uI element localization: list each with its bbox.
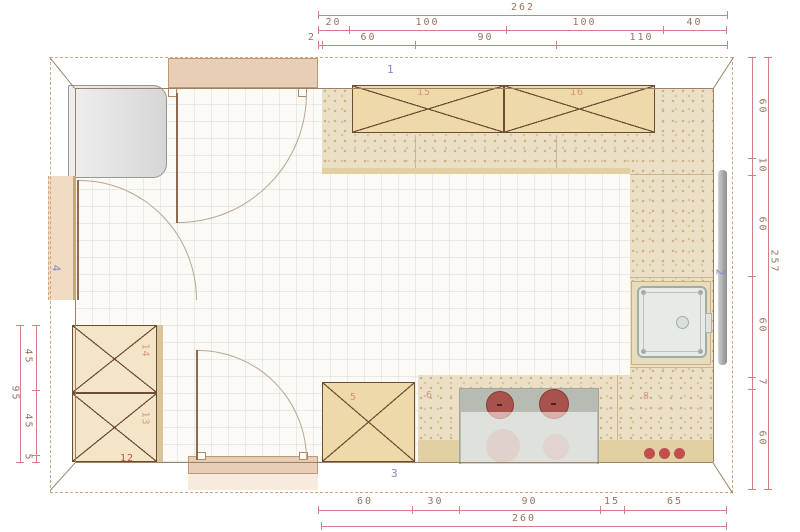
dim-tick	[32, 390, 40, 391]
dim-right-total: 257	[769, 247, 780, 277]
dim-left-total: 95	[10, 379, 21, 409]
wall-label-1: 1	[387, 64, 394, 76]
dimension-line	[318, 510, 727, 511]
dim-right-4: 7	[757, 368, 768, 398]
dim-bottom-4: 65	[624, 496, 726, 507]
dim-tick	[748, 158, 756, 159]
dim-tick	[556, 41, 557, 49]
dim-tick	[318, 26, 319, 34]
dim-tick	[321, 522, 322, 530]
dim-bottom-2: 90	[459, 496, 600, 507]
dim-tick	[727, 11, 728, 19]
dim-tick	[764, 57, 772, 58]
dim-tick	[748, 175, 756, 176]
dim-left-1: 45	[23, 407, 34, 437]
dim-bottom-total: 260	[321, 513, 727, 524]
dim-top-inner-0: 2	[306, 32, 318, 43]
dimension-line	[321, 526, 727, 527]
dim-right-3: 60	[757, 311, 768, 341]
dim-tick	[727, 41, 728, 49]
dim-top-outer-3: 40	[663, 17, 726, 28]
outer-boundary	[50, 57, 733, 493]
wall-label-3: 3	[391, 468, 398, 480]
dim-tick	[32, 325, 40, 326]
wall-label-2: 2	[713, 269, 725, 276]
dim-top-inner-1: 60	[322, 32, 415, 43]
dim-tick	[16, 325, 24, 326]
dim-right-1: 10	[757, 151, 768, 181]
dim-right-0: 60	[757, 92, 768, 122]
dim-tick	[748, 489, 756, 490]
dim-tick	[748, 377, 756, 378]
dim-tick	[318, 41, 319, 49]
dimension-line	[318, 15, 728, 16]
dim-tick	[322, 41, 323, 49]
dim-tick	[748, 276, 756, 277]
floor-plan: 15 16 14 13 12 5 6 8	[0, 0, 800, 532]
dim-top-inner-3: 110	[556, 32, 727, 43]
dim-left-2: 5	[23, 443, 34, 473]
dim-top-outer-2: 100	[506, 17, 663, 28]
dim-tick	[748, 57, 756, 58]
dim-tick	[726, 522, 727, 530]
dim-tick	[748, 389, 756, 390]
dim-bottom-1: 30	[412, 496, 459, 507]
dimension-line	[752, 57, 753, 490]
dim-right-2: 60	[757, 210, 768, 240]
dim-left-0: 45	[23, 342, 34, 372]
dimension-line	[36, 325, 37, 463]
dimension-line	[318, 45, 728, 46]
dim-tick	[318, 506, 319, 514]
dim-bottom-3: 15	[600, 496, 624, 507]
dim-top-inner-2: 90	[415, 32, 556, 43]
wall-label-4: 4	[49, 265, 61, 272]
dim-bottom-0: 60	[318, 496, 412, 507]
dim-right-5: 60	[757, 424, 768, 454]
dim-top-outer-0: 20	[318, 17, 349, 28]
dim-tick	[764, 489, 772, 490]
dim-top-outer-1: 100	[349, 17, 506, 28]
dim-tick	[415, 41, 416, 49]
dim-top-total: 262	[318, 2, 728, 13]
dimension-line	[318, 30, 727, 31]
